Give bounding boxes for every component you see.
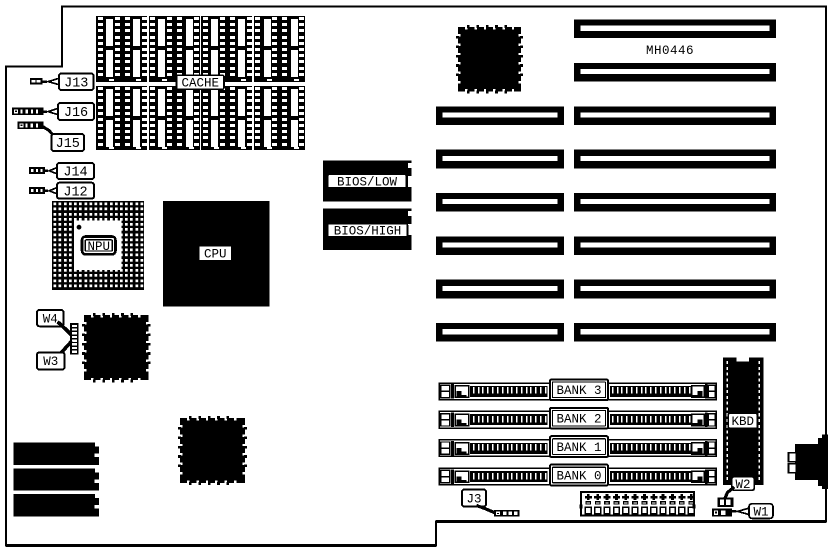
svg-text:MH0446: MH0446: [646, 44, 694, 58]
svg-text:BANK 1: BANK 1: [556, 441, 601, 455]
svg-text:J16: J16: [64, 106, 88, 121]
svg-text:W1: W1: [753, 505, 768, 519]
svg-text:CACHE: CACHE: [181, 76, 219, 90]
svg-text:J15: J15: [56, 137, 80, 152]
svg-text:BIOS/LOW: BIOS/LOW: [337, 175, 398, 189]
svg-text:BIOS/HIGH: BIOS/HIGH: [334, 224, 402, 238]
svg-text:KBD: KBD: [732, 415, 755, 429]
svg-text:J12: J12: [63, 185, 87, 200]
svg-text:J13: J13: [64, 76, 88, 91]
svg-text:CPU: CPU: [204, 247, 227, 261]
svg-text:BANK 0: BANK 0: [556, 469, 601, 483]
svg-text:NPU: NPU: [88, 240, 111, 254]
svg-text:W2: W2: [736, 478, 751, 492]
svg-text:BANK 3: BANK 3: [556, 384, 601, 398]
svg-text:J3: J3: [466, 492, 481, 506]
svg-text:J14: J14: [63, 166, 87, 181]
svg-text:BANK 2: BANK 2: [556, 413, 601, 427]
svg-text:W4: W4: [43, 312, 58, 326]
svg-text:W3: W3: [43, 355, 58, 369]
